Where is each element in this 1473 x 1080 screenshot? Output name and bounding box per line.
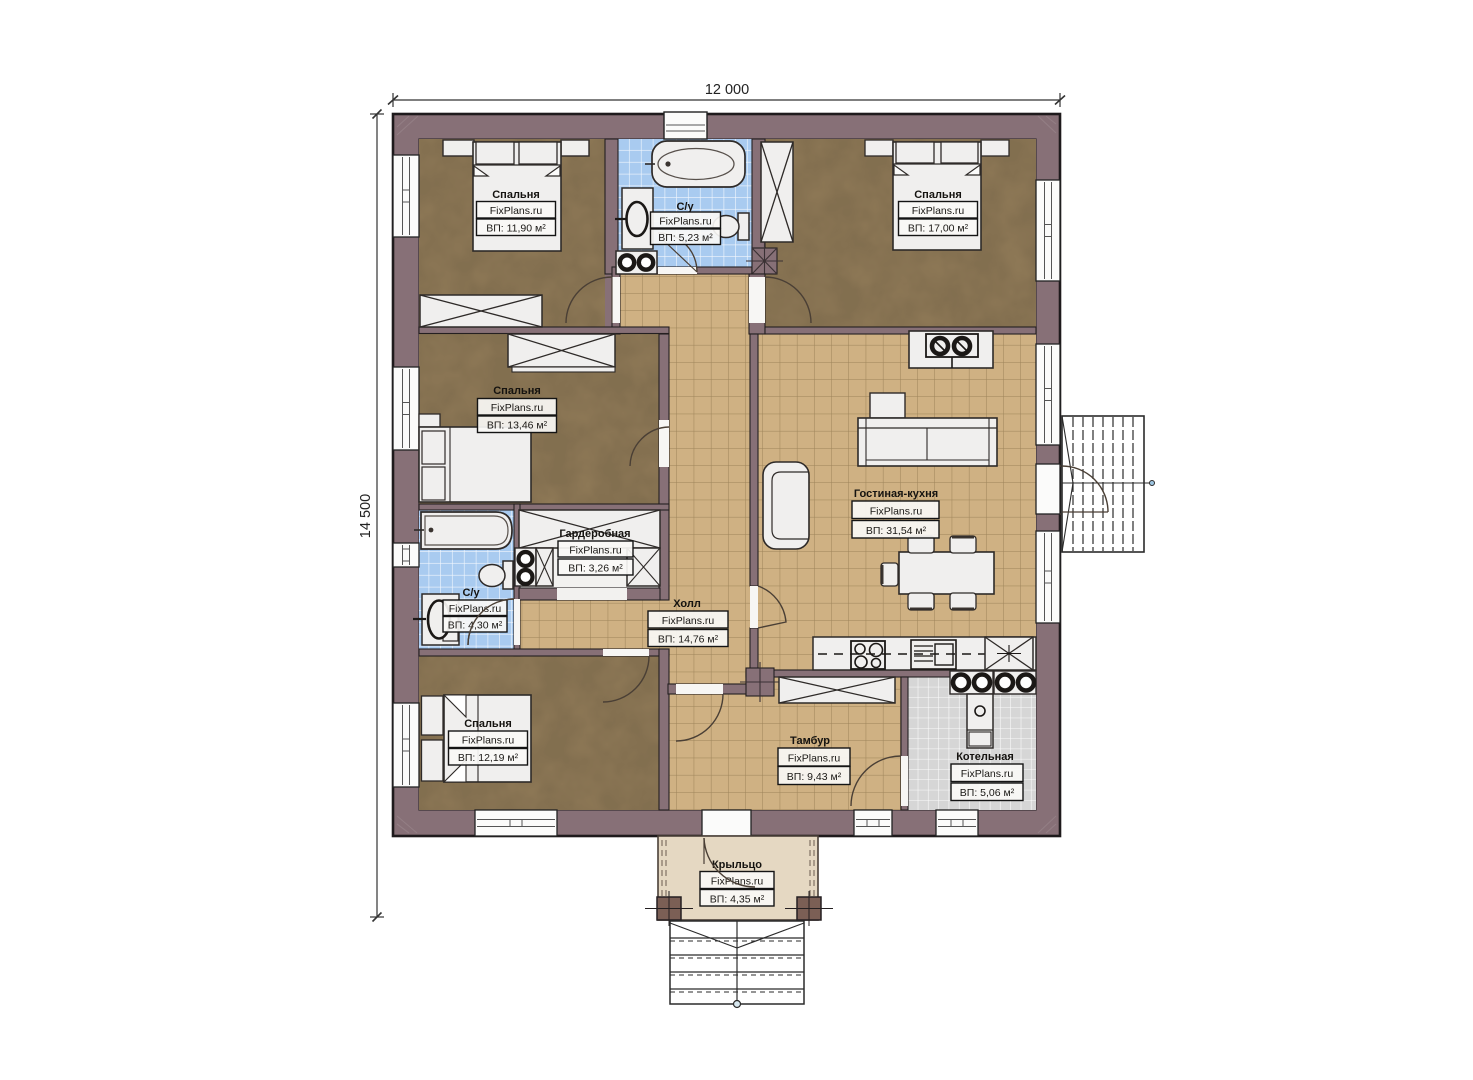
svg-text:FixPlans.ru: FixPlans.ru	[912, 205, 965, 217]
svg-text:ВП: 5,23 м²: ВП: 5,23 м²	[658, 232, 713, 244]
svg-text:ВП: 3,26 м²: ВП: 3,26 м²	[568, 563, 623, 575]
svg-text:FixPlans.ru: FixPlans.ru	[491, 402, 544, 414]
svg-text:ВП: 31,54 м²: ВП: 31,54 м²	[866, 525, 927, 537]
svg-text:ВП: 4,35 м²: ВП: 4,35 м²	[710, 894, 765, 906]
svg-text:FixPlans.ru: FixPlans.ru	[870, 506, 923, 518]
svg-text:С/у: С/у	[462, 587, 480, 599]
svg-text:ВП: 14,76 м²: ВП: 14,76 м²	[658, 634, 719, 646]
svg-text:ВП: 17,00 м²: ВП: 17,00 м²	[908, 222, 969, 234]
svg-text:ВП: 9,43 м²: ВП: 9,43 м²	[787, 771, 842, 783]
svg-text:Спальня: Спальня	[914, 189, 962, 201]
svg-text:Тамбур: Тамбур	[790, 735, 830, 747]
svg-text:Крыльцо: Крыльцо	[712, 859, 762, 871]
svg-text:С/у: С/у	[676, 201, 694, 213]
svg-text:FixPlans.ru: FixPlans.ru	[788, 753, 841, 765]
svg-text:Спальня: Спальня	[493, 385, 541, 397]
svg-text:Спальня: Спальня	[464, 718, 512, 730]
svg-text:FixPlans.ru: FixPlans.ru	[961, 768, 1014, 780]
svg-text:14 500: 14 500	[358, 494, 374, 538]
svg-text:12 000: 12 000	[705, 82, 749, 98]
svg-text:FixPlans.ru: FixPlans.ru	[659, 215, 712, 227]
svg-text:ВП: 13,46 м²: ВП: 13,46 м²	[487, 419, 548, 431]
svg-text:Гардеробная: Гардеробная	[559, 528, 630, 540]
svg-text:ВП: 11,90 м²: ВП: 11,90 м²	[486, 222, 546, 234]
svg-text:Спальня: Спальня	[492, 189, 540, 201]
svg-text:FixPlans.ru: FixPlans.ru	[449, 603, 502, 615]
svg-text:FixPlans.ru: FixPlans.ru	[462, 734, 515, 746]
svg-text:FixPlans.ru: FixPlans.ru	[490, 205, 543, 217]
svg-text:ВП: 5,06 м²: ВП: 5,06 м²	[960, 787, 1015, 799]
svg-text:FixPlans.ru: FixPlans.ru	[662, 615, 715, 627]
svg-text:FixPlans.ru: FixPlans.ru	[569, 545, 622, 557]
svg-text:ВП: 12,19 м²: ВП: 12,19 м²	[458, 752, 519, 764]
svg-text:FixPlans.ru: FixPlans.ru	[711, 876, 764, 888]
svg-text:Гостиная-кухня: Гостиная-кухня	[854, 488, 938, 500]
svg-text:Холл: Холл	[673, 598, 701, 610]
svg-text:Котельная: Котельная	[956, 751, 1014, 763]
